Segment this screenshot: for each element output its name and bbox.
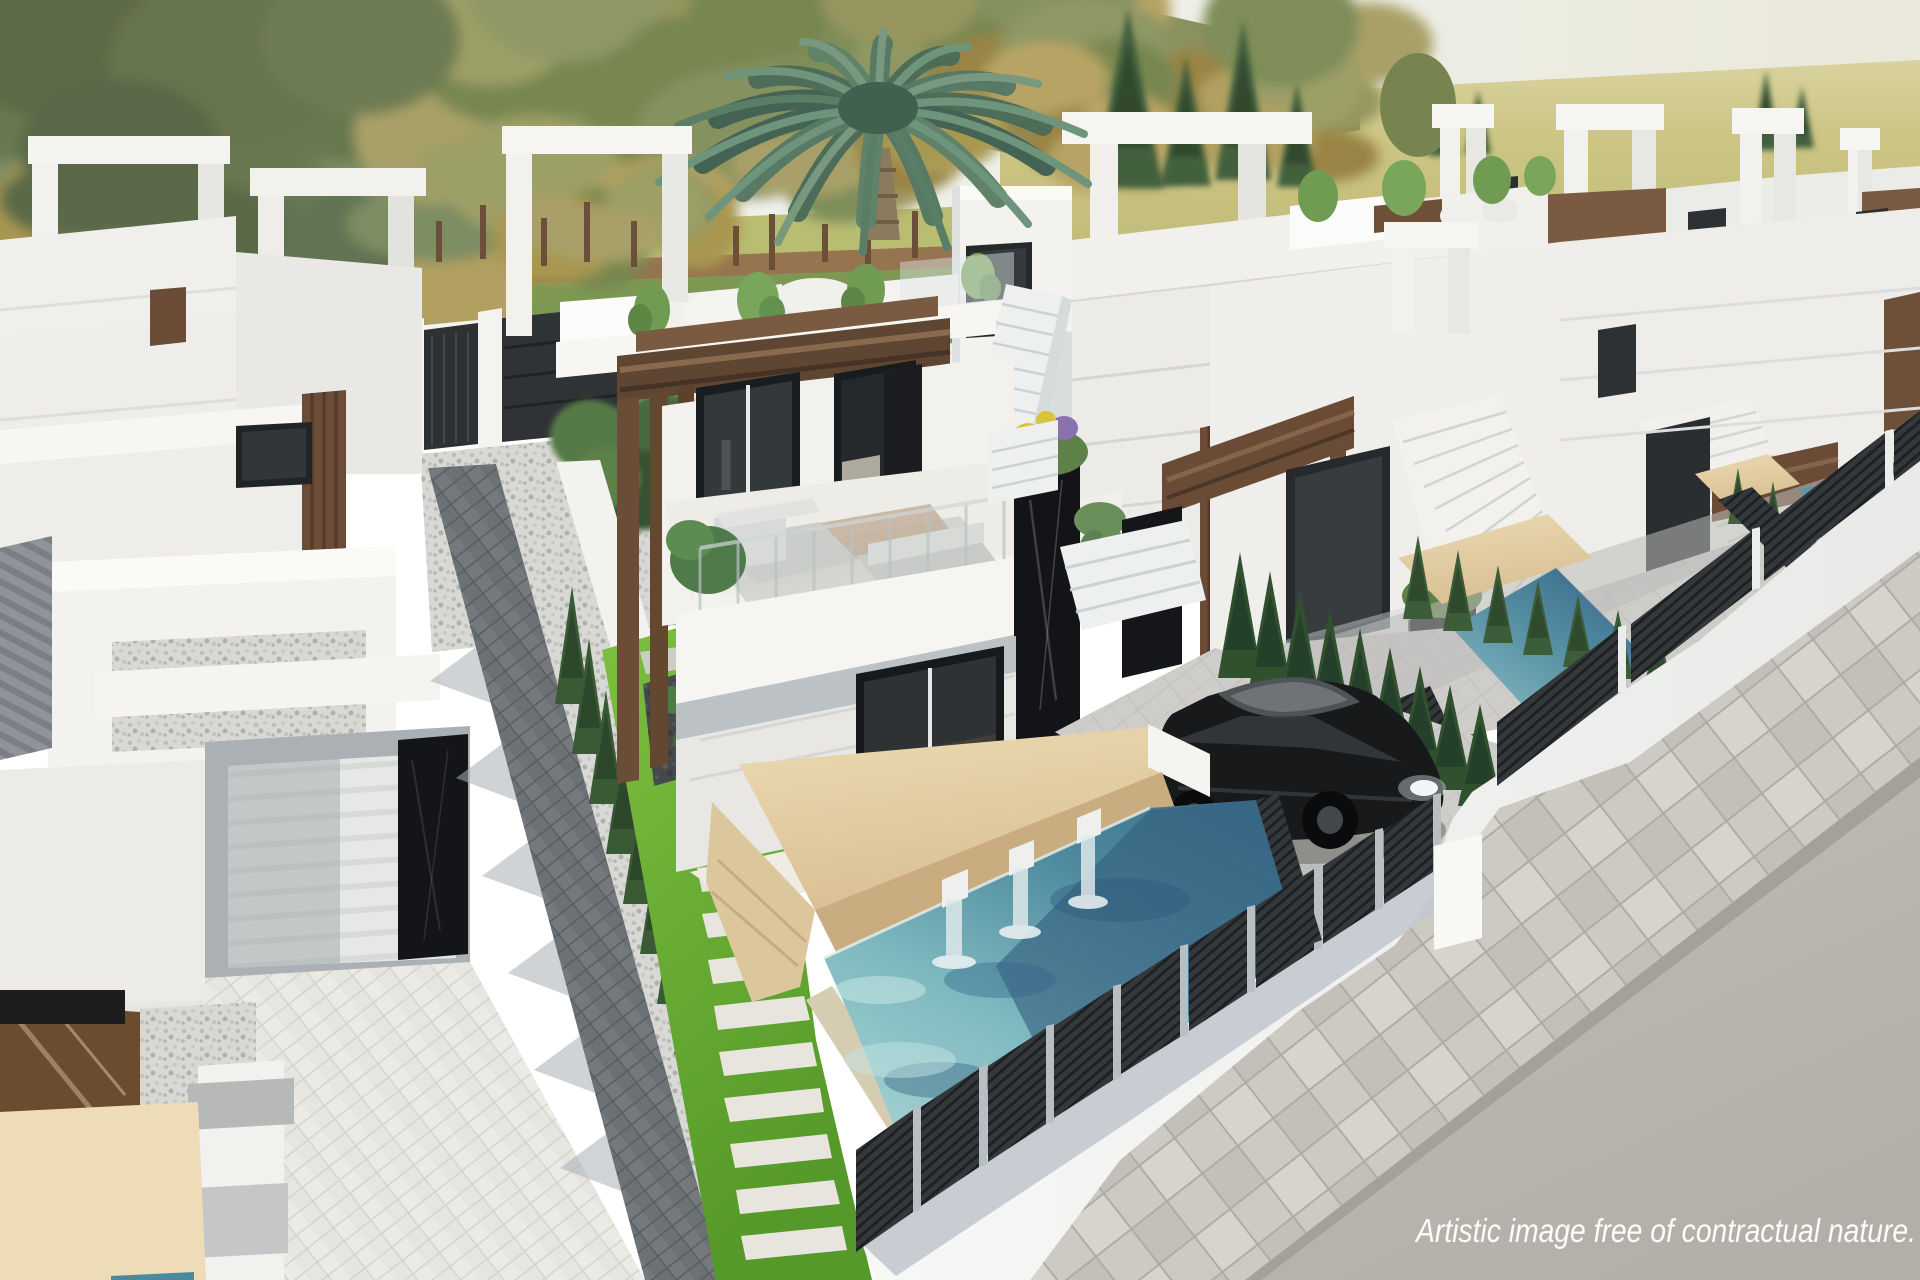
svg-text:Artistic image free of contrac: Artistic image free of contractual natur… [1414, 1212, 1916, 1249]
